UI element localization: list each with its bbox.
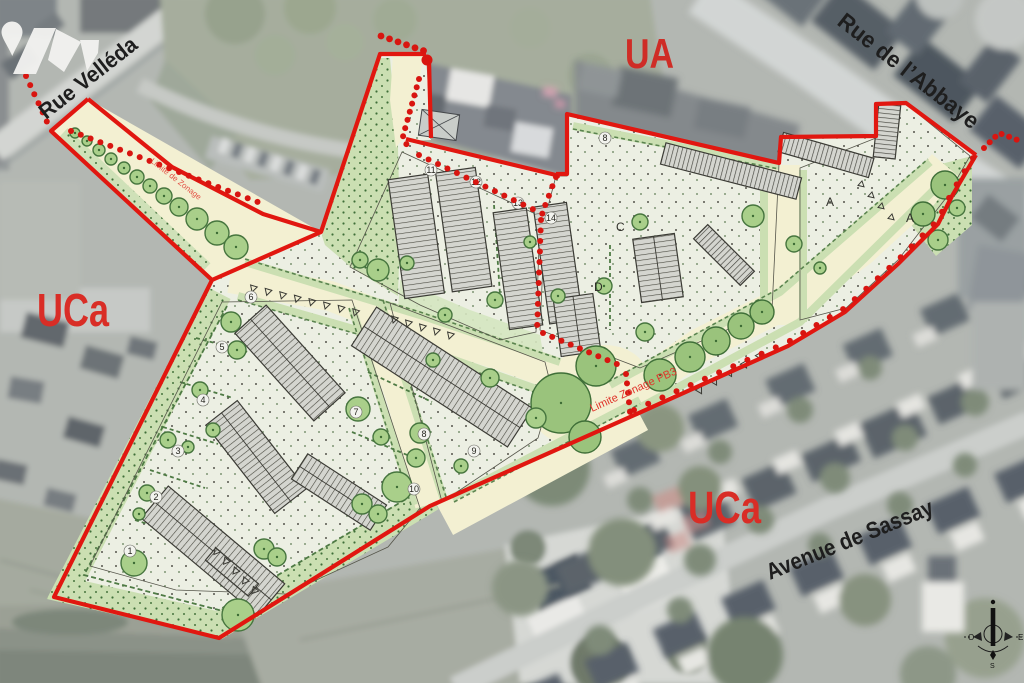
svg-text:S: S [990,663,995,670]
svg-text:E: E [1018,633,1023,642]
svg-text:UA: UA [625,30,674,77]
svg-text:10: 10 [409,484,419,494]
svg-text:UCa: UCa [37,284,109,336]
svg-text:14: 14 [546,213,556,223]
svg-text:O: O [968,633,974,642]
svg-text:3: 3 [175,446,180,456]
svg-text:4: 4 [200,395,205,405]
svg-text:5: 5 [219,342,224,352]
svg-text:1: 1 [127,546,132,556]
svg-text:11: 11 [426,165,435,175]
svg-text:9: 9 [471,446,476,456]
svg-text:2: 2 [153,492,158,502]
svg-text:C: C [616,220,625,234]
svg-text:8: 8 [602,133,607,143]
svg-text:A: A [906,211,914,225]
svg-text:8: 8 [421,429,426,439]
svg-text:A: A [826,195,834,209]
svg-text:UCa: UCa [688,482,762,533]
svg-text:7: 7 [353,407,358,417]
svg-text:6: 6 [248,292,253,302]
svg-text:D: D [594,280,603,294]
